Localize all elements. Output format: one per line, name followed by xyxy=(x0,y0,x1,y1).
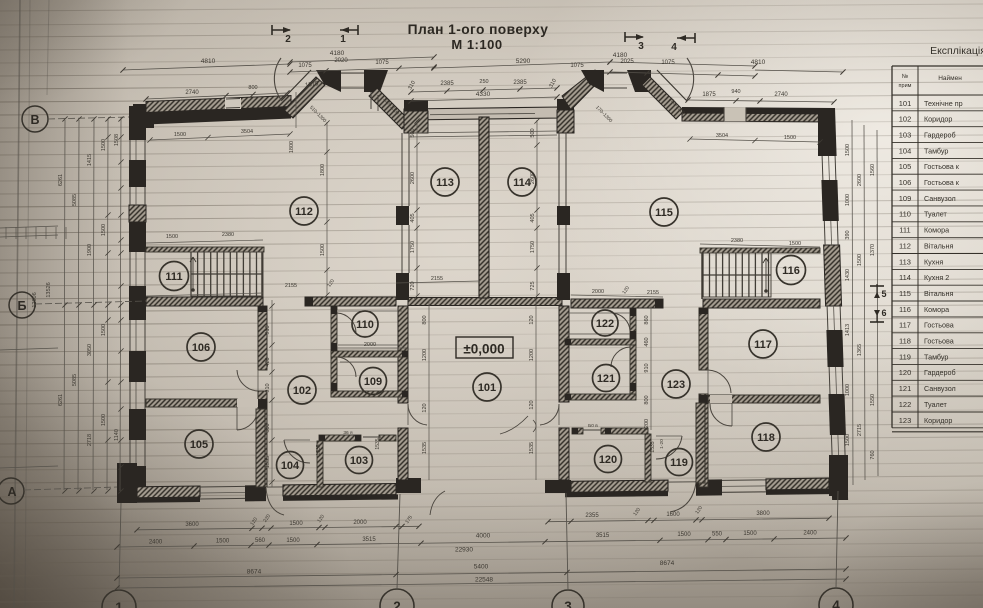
svg-text:Тамбур: Тамбур xyxy=(924,146,948,155)
svg-text:Технічне пр: Технічне пр xyxy=(924,99,963,108)
svg-text:2355: 2355 xyxy=(585,513,599,519)
svg-text:2020: 2020 xyxy=(334,58,348,64)
svg-text:105: 105 xyxy=(899,162,912,171)
svg-text:118: 118 xyxy=(757,432,775,444)
svg-text:940: 940 xyxy=(731,89,740,95)
svg-text:5085: 5085 xyxy=(72,194,78,206)
svg-text:110: 110 xyxy=(899,210,911,219)
svg-text:36 я: 36 я xyxy=(343,430,353,436)
svg-text:1-20: 1-20 xyxy=(659,439,665,449)
svg-text:1800: 1800 xyxy=(289,141,295,153)
svg-text:510–1300: 510–1300 xyxy=(308,105,328,125)
svg-text:План 1-ого поверху: План 1-ого поверху xyxy=(408,22,549,37)
svg-text:2: 2 xyxy=(285,34,291,45)
svg-text:Санвузол: Санвузол xyxy=(924,384,956,393)
svg-text:113: 113 xyxy=(436,177,454,189)
svg-text:120: 120 xyxy=(422,403,428,412)
svg-text:1600: 1600 xyxy=(666,512,680,518)
svg-text:1500: 1500 xyxy=(166,234,178,240)
svg-text:Гардероб: Гардероб xyxy=(924,131,956,140)
svg-text:1075: 1075 xyxy=(570,63,584,69)
svg-text:123: 123 xyxy=(667,379,685,391)
svg-text:Санвузол: Санвузол xyxy=(924,194,956,203)
svg-text:910: 910 xyxy=(265,383,271,392)
svg-text:Експлікація: Експлікація xyxy=(930,45,983,57)
svg-text:109: 109 xyxy=(364,376,382,388)
svg-text:Комора: Комора xyxy=(924,226,949,235)
svg-text:119: 119 xyxy=(670,457,688,469)
svg-text:В: В xyxy=(30,113,39,127)
svg-text:1500: 1500 xyxy=(101,139,107,151)
svg-text:4: 4 xyxy=(832,598,840,608)
svg-text:3515: 3515 xyxy=(362,537,376,543)
svg-text:116: 116 xyxy=(899,305,911,314)
svg-text:120: 120 xyxy=(599,454,617,466)
svg-text:560: 560 xyxy=(255,538,266,544)
svg-text:№: № xyxy=(902,73,908,80)
svg-text:1075: 1075 xyxy=(375,60,389,66)
svg-text:2715: 2715 xyxy=(857,424,863,436)
svg-text:Б0 в: Б0 в xyxy=(588,423,598,429)
svg-text:760: 760 xyxy=(870,450,876,459)
svg-text:2000: 2000 xyxy=(353,520,367,526)
svg-text:1413: 1413 xyxy=(845,324,851,336)
svg-text:114: 114 xyxy=(899,273,911,282)
svg-text:1535: 1535 xyxy=(529,442,535,454)
svg-text:Наймен: Наймен xyxy=(938,74,962,82)
svg-text:115: 115 xyxy=(655,207,673,219)
svg-text:Гардероб: Гардероб xyxy=(924,368,956,377)
svg-text:120: 120 xyxy=(529,315,535,324)
svg-text:2400: 2400 xyxy=(149,540,163,546)
svg-text:123: 123 xyxy=(899,416,912,425)
svg-text:2600: 2600 xyxy=(530,172,536,184)
svg-text:3515: 3515 xyxy=(596,533,610,539)
svg-text:1140: 1140 xyxy=(114,429,120,441)
svg-text:1200: 1200 xyxy=(644,419,650,431)
svg-text:170–1300: 170–1300 xyxy=(594,105,614,125)
svg-text:112: 112 xyxy=(295,206,313,218)
svg-text:1: 1 xyxy=(340,34,346,45)
svg-text:120: 120 xyxy=(621,285,631,295)
svg-text:3600: 3600 xyxy=(185,522,199,528)
svg-text:3800: 3800 xyxy=(756,511,770,517)
svg-text:8674: 8674 xyxy=(247,568,262,575)
svg-text:500: 500 xyxy=(530,128,536,137)
svg-text:Кухня: Кухня xyxy=(924,257,943,266)
svg-text:3: 3 xyxy=(564,599,572,608)
svg-text:550: 550 xyxy=(712,532,723,538)
svg-text:13526: 13526 xyxy=(46,282,52,297)
svg-text:4330: 4330 xyxy=(476,91,491,98)
svg-text:8674: 8674 xyxy=(660,560,675,567)
svg-text:1500: 1500 xyxy=(845,144,851,156)
svg-text:Гостьова к: Гостьова к xyxy=(924,162,960,171)
svg-text:1500: 1500 xyxy=(845,434,851,446)
svg-text:420: 420 xyxy=(265,357,271,366)
svg-text:112: 112 xyxy=(899,241,911,250)
svg-text:Гостьова: Гостьова xyxy=(924,321,954,330)
svg-text:6: 6 xyxy=(881,308,886,318)
svg-text:2155: 2155 xyxy=(285,283,297,289)
svg-text:103: 103 xyxy=(899,131,912,140)
svg-text:1000: 1000 xyxy=(845,194,851,206)
svg-text:1500: 1500 xyxy=(286,538,300,544)
svg-text:120: 120 xyxy=(899,368,912,377)
svg-text:800: 800 xyxy=(265,423,271,432)
svg-text:1750: 1750 xyxy=(530,241,536,253)
svg-text:3504: 3504 xyxy=(716,133,728,139)
svg-text:3504: 3504 xyxy=(241,129,253,135)
svg-text:105: 105 xyxy=(190,439,208,451)
svg-text:800: 800 xyxy=(248,85,257,91)
svg-text:120: 120 xyxy=(326,278,336,288)
svg-text:104: 104 xyxy=(281,460,300,472)
svg-text:2000: 2000 xyxy=(592,289,604,295)
svg-text:115: 115 xyxy=(899,289,911,298)
svg-text:1500: 1500 xyxy=(789,241,801,247)
svg-text:1508: 1508 xyxy=(114,134,120,146)
svg-text:4180: 4180 xyxy=(613,52,628,59)
svg-text:121: 121 xyxy=(597,373,615,385)
svg-text:Гостьова: Гостьова xyxy=(924,337,954,346)
svg-text:Вітальня: Вітальня xyxy=(924,289,954,298)
svg-text:2380: 2380 xyxy=(222,232,234,238)
svg-text:1500: 1500 xyxy=(216,539,230,545)
svg-text:1: 1 xyxy=(115,600,123,608)
svg-text:119: 119 xyxy=(899,352,911,361)
svg-text:2155: 2155 xyxy=(431,276,443,282)
svg-text:2385: 2385 xyxy=(440,81,454,87)
svg-text:1500: 1500 xyxy=(101,224,107,236)
svg-text:111: 111 xyxy=(899,226,910,235)
svg-text:3: 3 xyxy=(638,41,644,52)
svg-text:175: 175 xyxy=(404,515,414,525)
svg-text:1550: 1550 xyxy=(870,394,876,406)
svg-text:1000: 1000 xyxy=(845,384,851,396)
svg-text:1500: 1500 xyxy=(101,414,107,426)
svg-text:1750: 1750 xyxy=(410,241,416,253)
svg-text:2385: 2385 xyxy=(513,80,527,86)
svg-text:104: 104 xyxy=(899,146,912,155)
svg-text:1075: 1075 xyxy=(298,63,312,69)
svg-text:122: 122 xyxy=(596,318,614,330)
svg-text:1200: 1200 xyxy=(422,349,428,361)
svg-text:1370: 1370 xyxy=(870,244,876,256)
svg-text:310: 310 xyxy=(407,80,417,91)
svg-text:Кухня 2: Кухня 2 xyxy=(924,273,949,282)
svg-text:1200: 1200 xyxy=(529,349,535,361)
svg-text:1500: 1500 xyxy=(677,532,691,538)
svg-text:114: 114 xyxy=(513,177,532,189)
svg-text:5: 5 xyxy=(881,289,886,299)
svg-text:2718: 2718 xyxy=(87,434,93,446)
svg-text:102: 102 xyxy=(293,385,311,397)
svg-text:109: 109 xyxy=(899,194,912,203)
svg-text:220: 220 xyxy=(262,513,272,523)
svg-text:1430: 1430 xyxy=(845,269,851,281)
svg-text:860: 860 xyxy=(644,315,650,324)
svg-text:120: 120 xyxy=(529,400,535,409)
svg-text:прим: прим xyxy=(899,83,912,89)
svg-text:1535: 1535 xyxy=(650,441,656,452)
svg-text:6261: 6261 xyxy=(58,174,64,186)
svg-text:Коридор: Коридор xyxy=(924,416,952,425)
svg-text:116: 116 xyxy=(782,265,800,277)
svg-text:405: 405 xyxy=(410,213,416,222)
svg-text:1500: 1500 xyxy=(743,531,757,537)
svg-text:5400: 5400 xyxy=(474,564,489,571)
svg-text:4810: 4810 xyxy=(201,58,216,65)
svg-text:1500: 1500 xyxy=(289,521,303,527)
svg-text:111: 111 xyxy=(165,271,182,283)
svg-text:2380: 2380 xyxy=(731,238,743,244)
svg-text:1560: 1560 xyxy=(870,164,876,176)
svg-text:1900: 1900 xyxy=(87,244,93,256)
svg-text:106: 106 xyxy=(899,178,912,187)
svg-text:2000: 2000 xyxy=(364,342,376,348)
svg-text:Туалет: Туалет xyxy=(924,210,947,219)
svg-text:2740: 2740 xyxy=(185,90,199,96)
svg-text:117: 117 xyxy=(899,321,911,330)
svg-text:1875: 1875 xyxy=(702,92,716,98)
svg-text:725: 725 xyxy=(530,281,536,290)
svg-text:800: 800 xyxy=(422,315,428,324)
svg-text:1535: 1535 xyxy=(316,444,322,455)
svg-text:Комора: Комора xyxy=(924,305,949,314)
svg-text:1075: 1075 xyxy=(661,60,675,66)
svg-text:121: 121 xyxy=(899,384,912,393)
svg-text:500: 500 xyxy=(410,128,416,137)
svg-text:310: 310 xyxy=(548,78,558,89)
svg-text:2155: 2155 xyxy=(647,290,659,296)
svg-text:118: 118 xyxy=(899,337,911,346)
svg-text:101: 101 xyxy=(478,382,496,394)
svg-text:390: 390 xyxy=(845,230,851,239)
svg-text:2400: 2400 xyxy=(803,530,817,536)
svg-text:103: 103 xyxy=(350,455,368,467)
svg-text:М 1:100: М 1:100 xyxy=(451,37,502,52)
svg-text:250: 250 xyxy=(479,79,488,85)
svg-text:1415: 1415 xyxy=(87,154,93,166)
svg-text:±0,000: ±0,000 xyxy=(463,342,504,357)
svg-text:120: 120 xyxy=(249,516,259,526)
svg-text:1500: 1500 xyxy=(320,244,326,256)
svg-text:Гостьова к: Гостьова к xyxy=(924,178,960,187)
svg-text:4000: 4000 xyxy=(476,533,491,540)
svg-text:1535: 1535 xyxy=(375,438,381,449)
svg-text:А: А xyxy=(7,485,16,499)
svg-text:1800: 1800 xyxy=(320,164,326,176)
svg-text:1535: 1535 xyxy=(422,442,428,454)
svg-text:117: 117 xyxy=(754,339,772,351)
svg-text:1500: 1500 xyxy=(784,135,796,141)
svg-text:113: 113 xyxy=(899,257,911,266)
svg-text:Тамбур: Тамбур xyxy=(924,352,948,361)
svg-text:22548: 22548 xyxy=(475,577,493,584)
svg-text:2025: 2025 xyxy=(620,59,634,65)
svg-text:4810: 4810 xyxy=(751,59,766,66)
svg-text:Туалет: Туалет xyxy=(924,400,947,409)
svg-text:460: 460 xyxy=(644,337,650,346)
svg-text:2600: 2600 xyxy=(857,174,863,186)
svg-text:2740: 2740 xyxy=(774,92,788,98)
svg-text:1535: 1535 xyxy=(265,456,271,468)
svg-text:4180: 4180 xyxy=(330,50,345,57)
svg-text:122: 122 xyxy=(899,400,912,409)
svg-text:800: 800 xyxy=(644,395,650,404)
svg-text:910: 910 xyxy=(265,325,271,334)
svg-text:910: 910 xyxy=(644,363,650,372)
svg-text:120: 120 xyxy=(694,505,704,515)
svg-text:5290: 5290 xyxy=(516,58,531,65)
svg-text:102: 102 xyxy=(899,115,912,124)
svg-text:Б: Б xyxy=(18,299,27,313)
svg-text:120: 120 xyxy=(316,514,326,524)
svg-text:1500: 1500 xyxy=(101,324,107,336)
svg-text:101: 101 xyxy=(899,99,912,108)
svg-text:2600: 2600 xyxy=(410,172,416,184)
svg-text:4: 4 xyxy=(671,42,677,53)
svg-text:1365: 1365 xyxy=(857,344,863,356)
svg-text:5085: 5085 xyxy=(72,374,78,386)
svg-text:Коридор: Коридор xyxy=(924,115,952,124)
svg-text:Вітальня: Вітальня xyxy=(924,241,954,250)
svg-text:3050: 3050 xyxy=(87,344,93,356)
svg-text:1500: 1500 xyxy=(174,132,186,138)
svg-text:110: 110 xyxy=(356,319,374,331)
svg-text:120: 120 xyxy=(632,507,642,517)
svg-text:12806: 12806 xyxy=(32,292,38,307)
svg-text:106: 106 xyxy=(192,342,210,354)
svg-text:405: 405 xyxy=(530,213,536,222)
svg-text:6261: 6261 xyxy=(58,394,64,406)
svg-text:1500: 1500 xyxy=(857,254,863,266)
svg-text:2: 2 xyxy=(393,599,401,608)
svg-text:22930: 22930 xyxy=(455,547,473,554)
